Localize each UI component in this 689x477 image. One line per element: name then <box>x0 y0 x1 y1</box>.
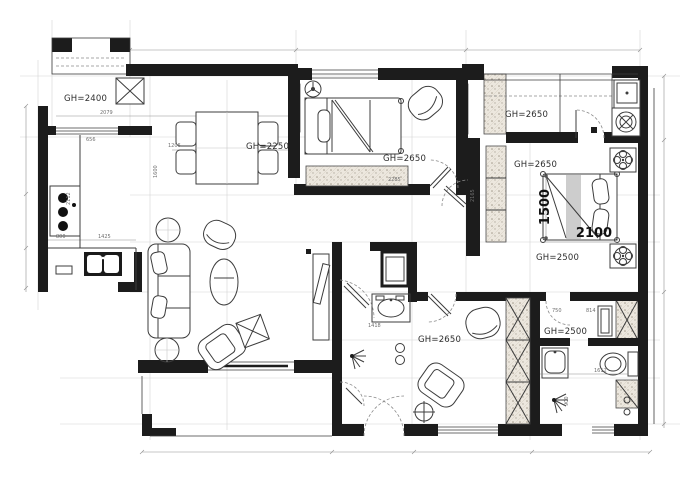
floor-plan: GH=2400 GH=2650 GH=2250 GH=2650 GH=2650 … <box>0 0 689 477</box>
switch-dot <box>306 249 311 254</box>
dim-dining-width: 1206 <box>168 143 181 149</box>
coffee-table <box>210 259 238 305</box>
door-leaf <box>344 283 369 308</box>
dim-vanity-right: 814 <box>586 308 596 314</box>
shower-head-icon <box>350 350 366 369</box>
dim-kitchen-depth: 2112 <box>66 192 72 205</box>
label-gh-dining: GH=2250 <box>246 142 289 152</box>
door-leaf <box>430 167 451 188</box>
dim-kitchen-top: 2079 <box>100 110 113 116</box>
bedroom3 <box>413 298 530 424</box>
dim-wardrobe-b2: 2285 <box>388 177 401 183</box>
label-gh-bedroom3: GH=2650 <box>418 335 461 345</box>
master-bedroom <box>486 146 636 268</box>
mbath-shelf <box>598 306 612 336</box>
ceiling-lamp-icon <box>413 401 435 423</box>
door-leaf <box>346 388 362 404</box>
drainer <box>56 266 72 274</box>
dining-chair <box>258 150 278 174</box>
label-bed-width: 1500 <box>538 189 553 225</box>
dim-basin: 1418 <box>368 323 381 329</box>
bedroom2-chair <box>403 81 447 124</box>
label-bed-length: 2100 <box>576 226 612 241</box>
bedroom2-wardrobe <box>306 166 408 186</box>
dim-mbath-width: 1612 <box>594 368 607 374</box>
laundry <box>612 80 640 136</box>
side-table <box>155 338 179 362</box>
dim-vanity-left: 750 <box>552 308 562 314</box>
switch-dot <box>591 127 597 133</box>
label-gh-laundry: GH=2650 <box>505 110 548 120</box>
dim-balcony-door: 656 <box>86 137 96 143</box>
bedroom2 <box>305 81 447 186</box>
dim-hall-height: 1600 <box>153 165 159 178</box>
label-gh-balcony: GH=2400 <box>64 94 107 104</box>
dim-mbath-depth: 900 <box>564 396 570 406</box>
kitchen <box>48 78 144 290</box>
dim-counter-left: 800 <box>56 234 66 240</box>
living-room <box>148 216 330 373</box>
bed2-pillow <box>318 110 330 142</box>
side-table <box>156 218 180 242</box>
toilet-drain <box>396 344 405 353</box>
bathroom <box>350 252 410 369</box>
floorplan-svg: GH=2400 GH=2650 GH=2250 GH=2650 GH=2650 … <box>0 0 689 477</box>
dim-master-side: 2165 <box>470 189 476 202</box>
dining-chair <box>176 150 196 174</box>
label-gh-master-bath: GH=2500 <box>544 327 587 337</box>
desk-chair <box>463 304 504 342</box>
label-gh-master-top: GH=2650 <box>514 160 557 170</box>
dim-counter-bottom: 1425 <box>98 234 111 240</box>
toilet-drain <box>396 356 405 365</box>
lounge-chair <box>200 216 240 253</box>
master-wardrobe <box>486 146 506 242</box>
label-gh-bedroom2: GH=2650 <box>383 154 426 164</box>
door-leaf <box>428 294 451 316</box>
ceiling-fan-icon <box>305 81 321 97</box>
label-gh-master-bottom: GH=2500 <box>536 253 579 263</box>
